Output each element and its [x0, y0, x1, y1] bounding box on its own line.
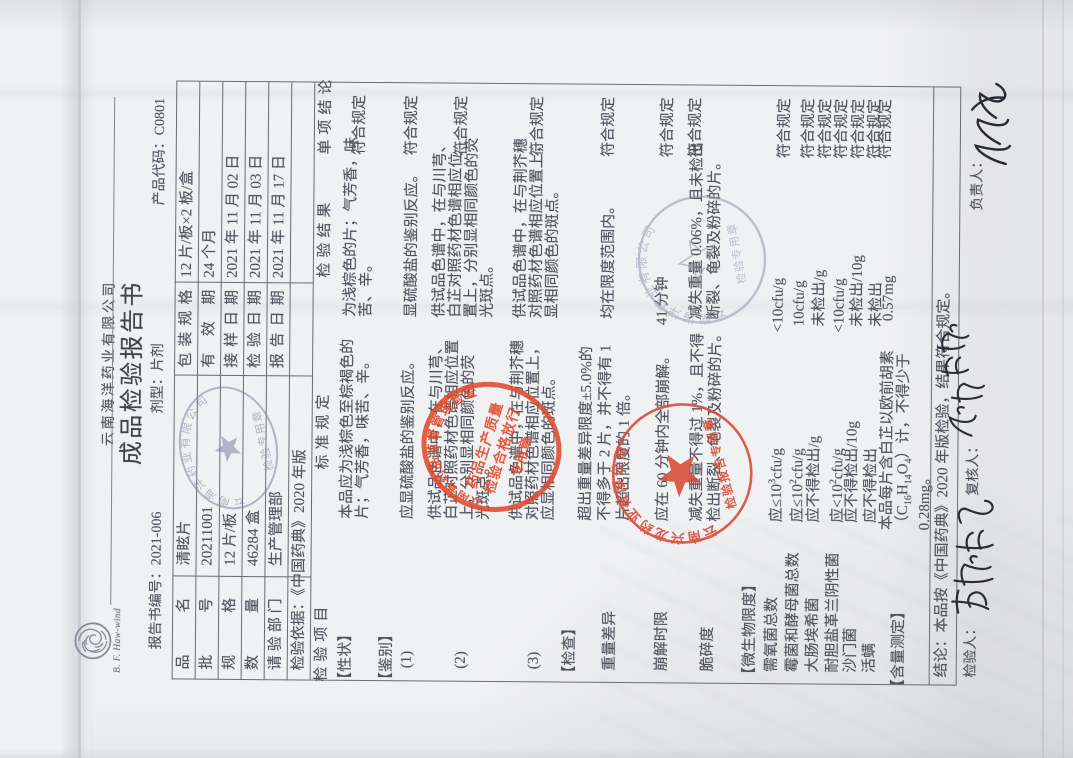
svg-text:检验专用章: 检验专用章 [724, 221, 749, 285]
svg-text:检验报告专用章: 检验报告专用章 [699, 416, 739, 511]
svg-text:检验专用章: 检验专用章 [249, 408, 276, 472]
svg-text:云南兴龙药业有限公司: 云南兴龙药业有限公司 [609, 423, 721, 547]
